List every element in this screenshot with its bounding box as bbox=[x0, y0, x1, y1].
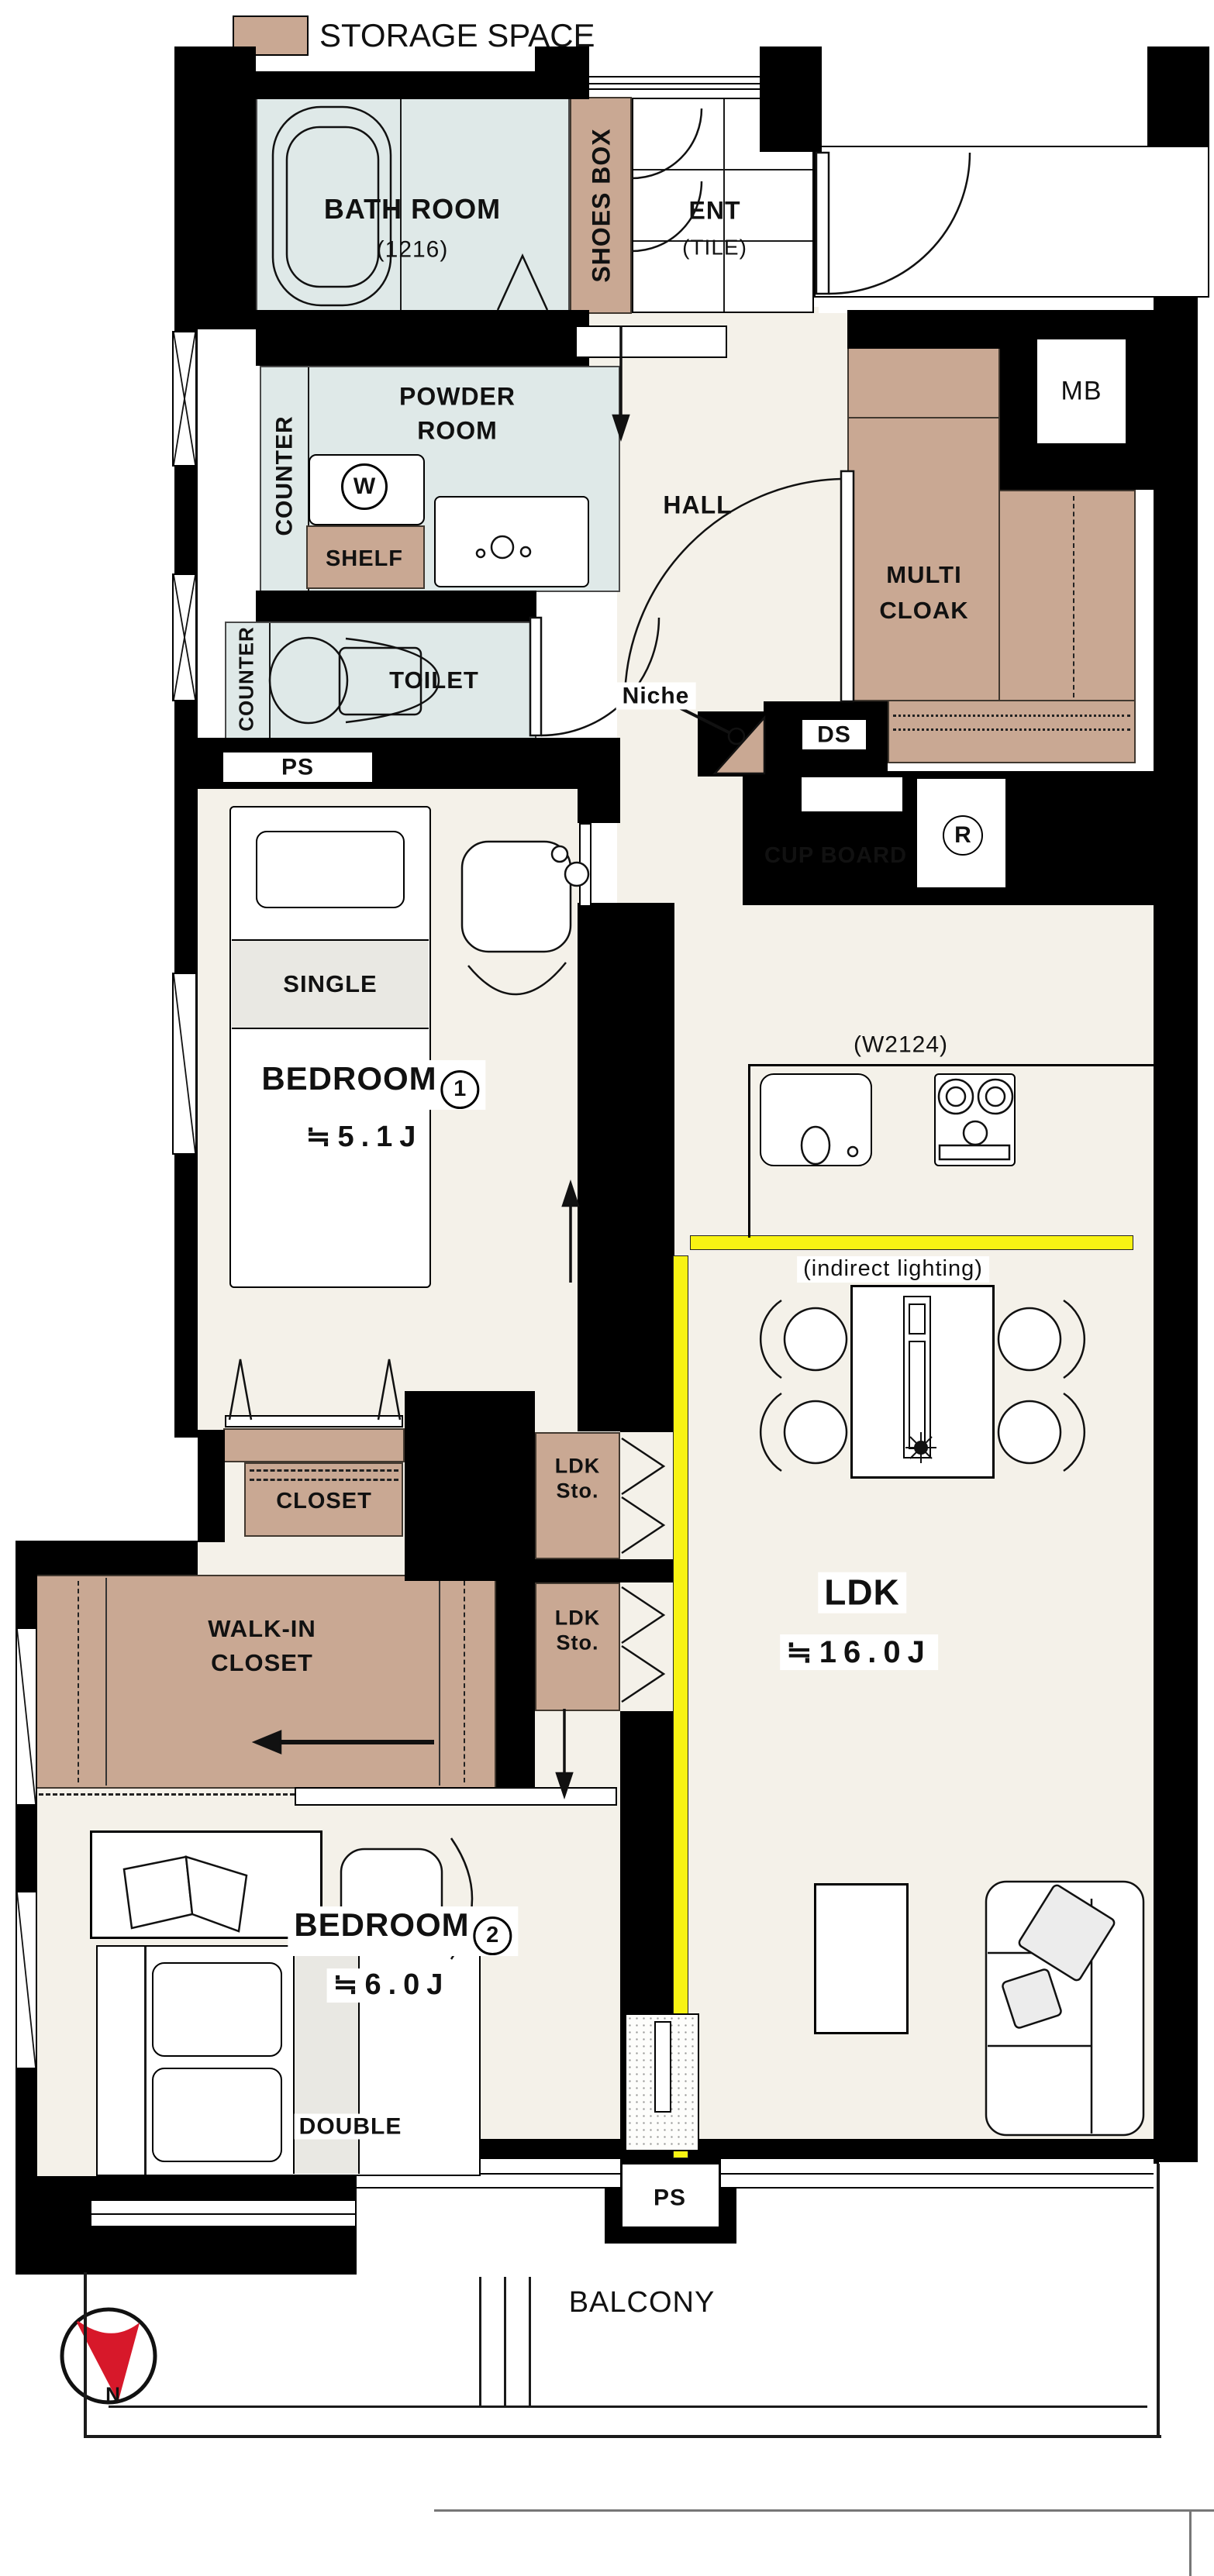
cupboard-label: CUP BOARD bbox=[764, 844, 907, 869]
bedroom1-label: BEDROOM1 bbox=[255, 1060, 485, 1110]
fridge-icon: R bbox=[943, 815, 983, 856]
wic-label-1: WALK-IN bbox=[208, 1616, 316, 1642]
ent-floor-label: (TILE) bbox=[682, 236, 747, 260]
ldk-sto2-label: LDK Sto. bbox=[537, 1606, 618, 1656]
bedroom1-chair bbox=[462, 842, 588, 994]
fridge-symbol: R bbox=[954, 822, 971, 849]
entrance-door bbox=[816, 153, 970, 294]
powder-room-label-1: POWDER bbox=[399, 383, 516, 410]
sofa bbox=[986, 1882, 1143, 2135]
site-boundary-v bbox=[1189, 2509, 1192, 2576]
niche-label: Niche bbox=[616, 683, 696, 710]
stove-burners bbox=[939, 1080, 1012, 1159]
balcony-partition-3 bbox=[529, 2277, 531, 2407]
compass-north-label: N bbox=[105, 2384, 121, 2406]
bathroom-label: BATH ROOM bbox=[324, 194, 501, 225]
counter-toilet-label: COUNTER bbox=[236, 626, 258, 732]
flower-icon bbox=[905, 1432, 936, 1463]
balcony-edge-bottom bbox=[84, 2435, 1161, 2438]
ps-top-label: PS bbox=[281, 755, 314, 780]
hall-label: HALL bbox=[663, 491, 732, 518]
ds-label: DS bbox=[817, 722, 851, 748]
multi-cloak-label-1: MULTI bbox=[886, 562, 961, 588]
ldk-sto1-label: LDK Sto. bbox=[537, 1454, 618, 1504]
vanity-faucet bbox=[477, 536, 530, 558]
closet-folding-doors bbox=[229, 1359, 400, 1420]
bedroom2-number: 2 bbox=[474, 1917, 512, 1955]
ent-label: ENT bbox=[689, 197, 741, 224]
bedroom2-label: BEDROOM2 bbox=[288, 1906, 518, 1956]
counter-powder-label: COUNTER bbox=[272, 415, 298, 536]
bedroom2-name: BEDROOM bbox=[294, 1906, 469, 1943]
balcony-edge-left bbox=[84, 2272, 87, 2437]
plan-linework bbox=[0, 0, 1214, 2576]
bedroom2-area-label: ≒6.0J bbox=[327, 1968, 457, 2003]
ldk-area-label: ≒16.0J bbox=[780, 1634, 938, 1670]
open-book bbox=[124, 1857, 247, 1931]
bedroom1-number: 1 bbox=[441, 1070, 480, 1109]
sink-detail bbox=[802, 1127, 857, 1164]
shoes-box-label: SHOES BOX bbox=[588, 128, 615, 282]
balcony-partition-1 bbox=[479, 2277, 481, 2407]
multi-cloak-label-2: CLOAK bbox=[879, 598, 968, 624]
ldk-door bbox=[625, 471, 854, 701]
toilet-door bbox=[530, 618, 659, 735]
single-bed-label: SINGLE bbox=[283, 971, 377, 997]
ps-bottom-label: PS bbox=[654, 2185, 686, 2211]
ldk-label: LDK bbox=[818, 1572, 906, 1613]
bedroom1-name: BEDROOM bbox=[261, 1060, 436, 1097]
balcony-label: BALCONY bbox=[569, 2287, 716, 2319]
kitchen-width-label: (W2124) bbox=[854, 1032, 948, 1058]
mb-label: MB bbox=[1061, 377, 1102, 405]
bathroom-size: (1216) bbox=[377, 237, 449, 263]
bedroom1-area-label: ≒5.1J bbox=[300, 1121, 429, 1155]
wic-label-2: CLOSET bbox=[211, 1650, 313, 1676]
site-boundary-h bbox=[434, 2509, 1214, 2512]
shoesbox-door-arcs bbox=[632, 108, 702, 251]
ldk-sto-folding-doors bbox=[622, 1438, 664, 1702]
balcony-partition-2 bbox=[504, 2277, 506, 2407]
toilet-label: TOILET bbox=[389, 667, 479, 694]
powder-room-label-2: ROOM bbox=[417, 417, 498, 444]
window-glazing bbox=[17, 332, 195, 2068]
double-bed-label: DOUBLE bbox=[295, 2114, 407, 2140]
niche-pointer bbox=[678, 707, 764, 773]
bathroom-door-icon bbox=[498, 256, 547, 310]
shelf-label: SHELF bbox=[326, 547, 403, 572]
indirect-lighting-label: (indirect lighting) bbox=[797, 1256, 989, 1283]
closet-label: CLOSET bbox=[276, 1489, 372, 1514]
floor-plan: STORAGE SPACE bbox=[0, 0, 1214, 2576]
balcony-edge-right bbox=[1157, 2164, 1160, 2437]
balcony-edge-inner bbox=[109, 2406, 1147, 2408]
